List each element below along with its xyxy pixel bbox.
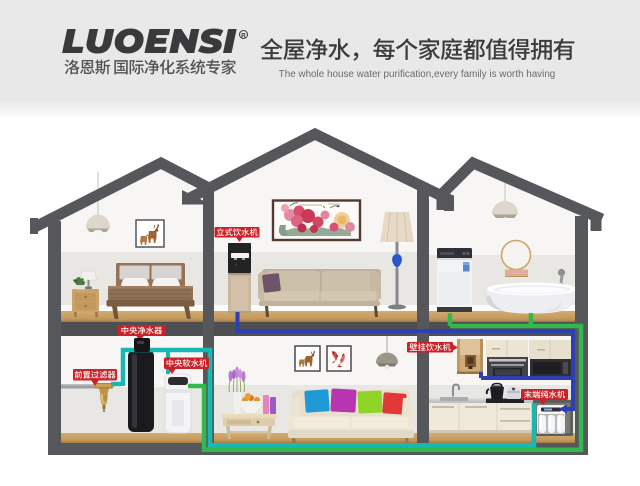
svg-text:The whole house water purifica: The whole house water purification,every… [279,69,556,80]
svg-text:R: R [241,32,246,39]
